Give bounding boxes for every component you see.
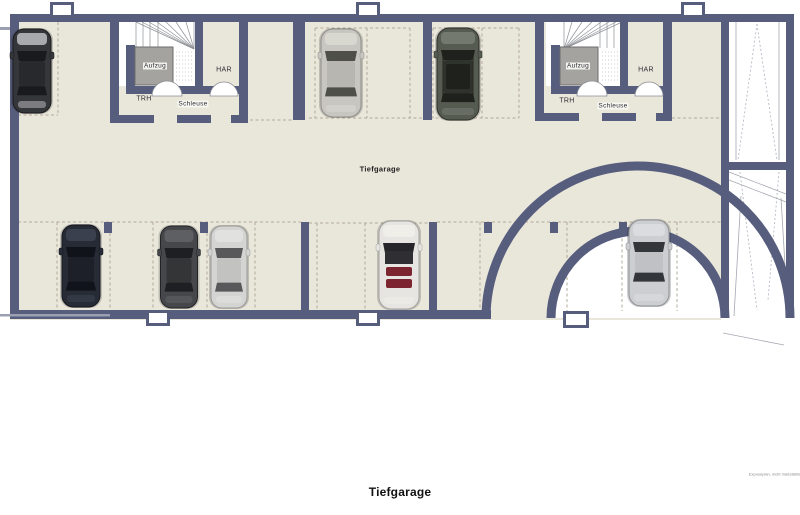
plan-footnote: Exposéplan, nicht maßstäblich [749, 472, 800, 477]
label-airlock-left: Schleuse [177, 101, 208, 108]
garage-area-label: Tiefgarage [360, 165, 401, 174]
site-boundary-tick [0, 27, 10, 30]
car-white-convertible-bottom [376, 220, 422, 310]
label-stairs-right: TRH [559, 98, 574, 105]
car-silver-sports-bottom-right [626, 219, 672, 307]
page-title: Tiefgarage [369, 485, 431, 499]
car-silver-sedan-top-middle [318, 28, 364, 118]
car-dark-blue-sedan-bottom [59, 224, 103, 308]
label-utility-right: HAR [638, 67, 654, 74]
car-gray-sedan-bottom [158, 225, 201, 309]
label-stairs-left: TRH [136, 96, 151, 103]
car-black-sedan-top-left [10, 28, 54, 114]
car-dark-suv-top-middle [434, 27, 482, 121]
label-elevator-left: Aufzug [143, 63, 167, 70]
label-utility-left: HAR [216, 67, 232, 74]
floor-plan-svg [0, 0, 800, 515]
site-boundary-line [0, 314, 110, 317]
label-airlock-right: Schleuse [597, 103, 628, 110]
label-elevator-right: Aufzug [566, 63, 590, 70]
car-silver-sedan-bottom [208, 225, 250, 309]
floor-plan-canvas: Aufzug HAR TRH Schleuse Aufzug HAR TRH S… [0, 0, 800, 515]
